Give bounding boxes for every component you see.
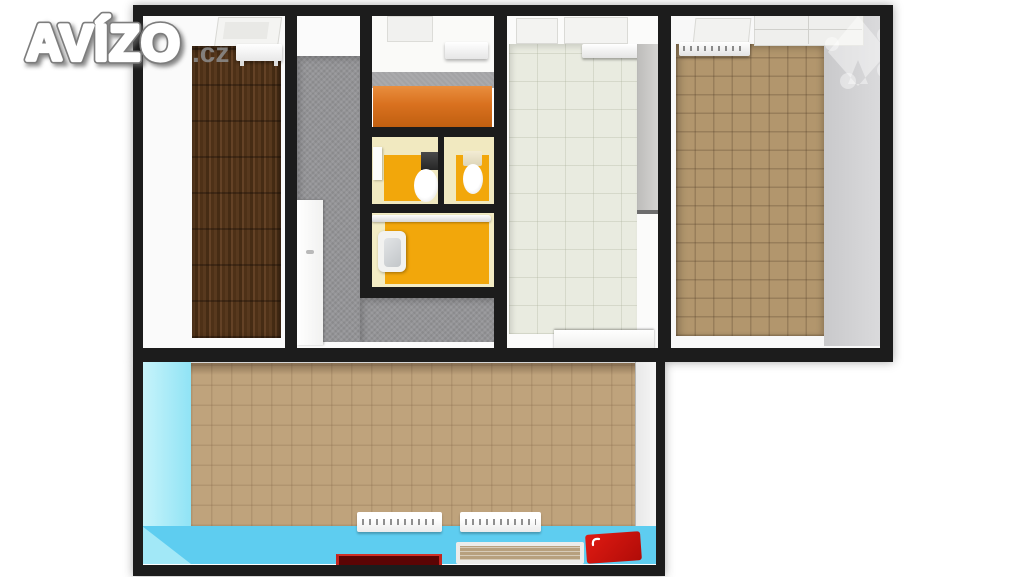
svg-text:AVÍZO: AVÍZO [26,15,181,71]
svg-text:.cz: .cz [192,37,229,68]
